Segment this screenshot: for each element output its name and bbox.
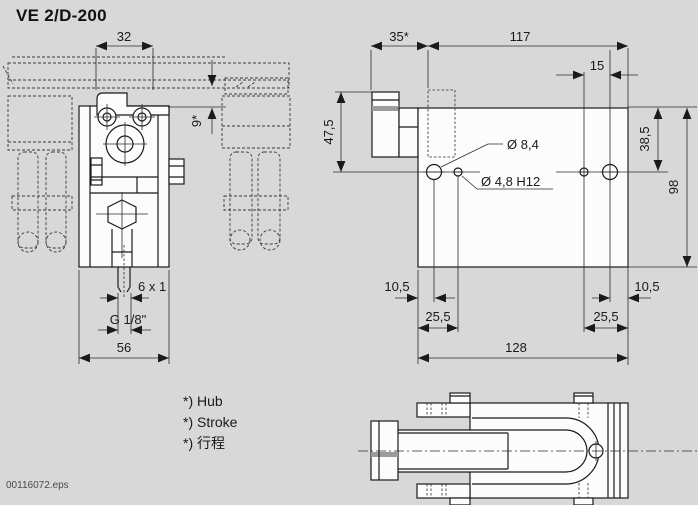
- clamp-screw-right: [169, 159, 184, 184]
- stop-gate-body: [79, 93, 184, 298]
- dim-10-5-right: 10,5: [634, 279, 659, 294]
- dim-25-5-left: 25,5: [425, 309, 450, 324]
- file-label: 00116072.eps: [6, 480, 69, 491]
- clamp-screw-left: [91, 158, 102, 185]
- top-view: Ø 8,4 Ø 4,8 H12 35* 117 15 47,5 38,5: [321, 29, 697, 365]
- note-stroke-zh: *) 行程: [183, 435, 225, 451]
- label-hole-large: Ø 8,4: [507, 137, 539, 152]
- dim-tube-6x1: 6 x 1: [138, 279, 166, 294]
- dim-98: 98: [666, 180, 681, 194]
- note-hub: *) Hub: [183, 393, 223, 409]
- belt-phantom: [3, 57, 289, 88]
- technical-drawing: 32 9* 6 x 1 G 1/8" 56: [0, 0, 698, 505]
- drawing-page: VE 2/D-200: [0, 0, 698, 505]
- dim-9-stroke: 9*: [189, 115, 204, 127]
- dim-32: 32: [117, 29, 131, 44]
- dim-38-5: 38,5: [637, 126, 652, 151]
- dim-128: 128: [505, 340, 527, 355]
- dim-25-5-right: 25,5: [593, 309, 618, 324]
- dim-47-5: 47,5: [321, 119, 336, 144]
- dim-10-5-left: 10,5: [384, 279, 409, 294]
- dim-35-stroke: 35*: [389, 29, 409, 44]
- note-stroke: *) Stroke: [183, 414, 237, 430]
- dim-117: 117: [510, 29, 531, 44]
- side-view: [358, 393, 697, 505]
- side-cylinder: [371, 421, 398, 480]
- right-profile-phantom: [222, 78, 290, 250]
- air-tube: [118, 267, 130, 292]
- label-hole-small: Ø 4,8 H12: [481, 174, 540, 189]
- footnotes: *) Hub *) Stroke *) 行程: [183, 391, 237, 454]
- cylinder: [372, 92, 399, 157]
- dim-15: 15: [590, 58, 604, 73]
- left-profile-phantom: [8, 96, 72, 252]
- dim-thread-g18: G 1/8": [110, 312, 147, 327]
- dim-56: 56: [117, 340, 131, 355]
- front-view: 32 9* 6 x 1 G 1/8" 56: [3, 29, 290, 364]
